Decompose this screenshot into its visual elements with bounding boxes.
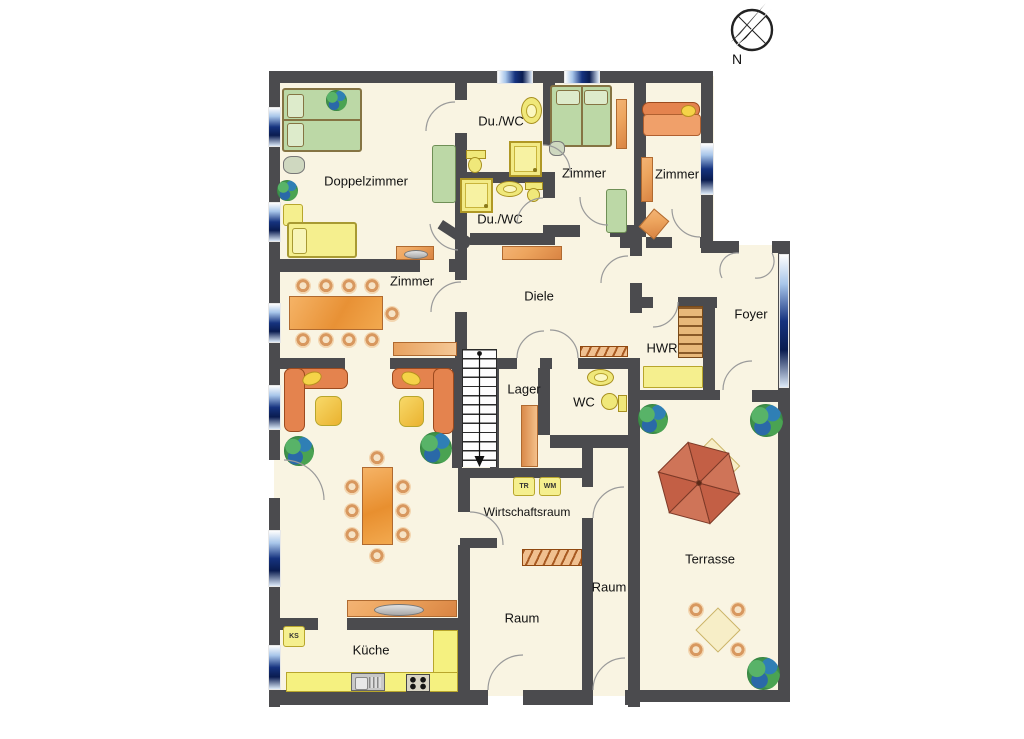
coffee-table: [399, 396, 424, 427]
window: [268, 202, 281, 242]
dryer-label: TR: [519, 483, 528, 490]
chair: [364, 278, 380, 294]
wall: [538, 368, 550, 435]
pillow: [292, 228, 307, 254]
closet: [606, 189, 627, 233]
dryer-box: TR: [513, 477, 535, 496]
window: [268, 107, 281, 147]
sideboard: [393, 342, 457, 356]
nightstand: [283, 156, 305, 174]
bed-divider: [284, 119, 360, 121]
bench: [643, 366, 703, 388]
wall: [269, 259, 420, 272]
wall: [347, 618, 458, 630]
kitchen-sink: [351, 673, 385, 691]
pillow: [556, 90, 580, 105]
pillow: [287, 123, 304, 147]
terrace-chair: [688, 602, 704, 618]
double-bed: [282, 88, 362, 152]
kitchen-counter: [433, 630, 458, 674]
chair: [369, 548, 385, 564]
room-label-zimmer-mitte: Zimmer: [562, 166, 606, 181]
shower: [509, 141, 542, 177]
terrace-chair: [730, 642, 746, 658]
wall: [543, 225, 580, 237]
window: [497, 70, 533, 84]
plant: [420, 432, 452, 464]
plant: [284, 436, 314, 466]
wall: [455, 83, 467, 100]
plant: [326, 90, 347, 111]
terrace-chair: [688, 642, 704, 658]
single-bed: [287, 222, 357, 258]
coat-rack: [522, 549, 582, 566]
chair: [395, 479, 411, 495]
room-label-kueche: Küche: [353, 643, 390, 658]
staircase: [462, 349, 497, 467]
room-label-foyer: Foyer: [734, 307, 767, 322]
chair: [341, 332, 357, 348]
room-label-hwr: HWR: [646, 341, 677, 356]
wall: [550, 435, 638, 448]
pillow: [287, 94, 304, 118]
tray: [404, 250, 428, 259]
washer-box: WM: [539, 477, 561, 496]
storage-shelf: [521, 405, 538, 467]
sideboard: [502, 246, 562, 260]
wall: [543, 172, 555, 198]
sideboard: [396, 246, 434, 260]
room-label-zimmer-ess: Zimmer: [390, 274, 434, 289]
wall: [642, 297, 653, 308]
wall: [582, 448, 593, 487]
room-label-du-wc-bottom: Du./WC: [477, 212, 523, 227]
chair: [395, 503, 411, 519]
room-label-du-wc-top: Du./WC: [478, 114, 524, 129]
window: [268, 530, 281, 587]
room-label-wc: WC: [573, 395, 595, 410]
pillow: [584, 90, 608, 105]
wall: [752, 390, 790, 402]
window: [268, 645, 281, 690]
plant: [747, 657, 780, 690]
wall: [578, 358, 640, 369]
wall: [630, 690, 790, 702]
chair: [384, 306, 400, 322]
wardrobe: [616, 99, 627, 149]
wall: [630, 237, 642, 256]
stove: [406, 674, 430, 692]
wall: [700, 237, 713, 248]
shelf: [678, 306, 703, 358]
fridge-label: KS: [289, 633, 299, 640]
washbasin: [587, 369, 614, 386]
double-bed: [550, 85, 612, 147]
room-label-wirtschaftsraum: Wirtschaftsraum: [484, 505, 571, 519]
room-label-diele: Diele: [524, 289, 554, 304]
bed-divider: [581, 87, 583, 145]
chair: [295, 332, 311, 348]
wall: [458, 545, 470, 690]
terrace-chair: [730, 602, 746, 618]
window: [700, 143, 714, 195]
chair: [318, 278, 334, 294]
washbasin: [496, 181, 523, 197]
wall: [646, 237, 672, 248]
plant: [750, 404, 783, 437]
nightstand: [549, 141, 565, 156]
chair: [369, 450, 385, 466]
wall: [269, 690, 488, 705]
wall: [470, 233, 545, 245]
wall: [628, 358, 640, 707]
fridge-box: KS: [283, 626, 305, 647]
chair: [318, 332, 334, 348]
wardrobe: [641, 157, 653, 202]
washbasin: [521, 97, 542, 124]
shower: [460, 178, 493, 213]
chair: [341, 278, 357, 294]
corner-sofa: [433, 368, 454, 434]
sofa-cushion: [681, 105, 696, 117]
chair: [364, 332, 380, 348]
sofa-seat: [643, 114, 701, 136]
chair: [395, 527, 411, 543]
wall: [778, 392, 790, 702]
platter: [374, 604, 424, 616]
wall: [713, 241, 739, 253]
wall: [497, 358, 517, 369]
wall: [458, 468, 470, 512]
wall: [269, 71, 713, 83]
window-foyer-glass: [779, 254, 789, 388]
wall: [582, 518, 593, 690]
plant: [638, 404, 668, 434]
wall: [455, 259, 467, 280]
room-label-raum-schmal: Raum: [592, 580, 627, 595]
wall: [703, 297, 715, 400]
chair: [295, 278, 311, 294]
chair: [344, 527, 360, 543]
floor-plan-canvas: KS TR WM Doppelzimmer Du./WC Du./WC Zimm…: [0, 0, 1024, 739]
chair: [344, 479, 360, 495]
compass-label: N: [732, 51, 742, 67]
coat-rack: [580, 346, 628, 357]
window: [268, 303, 281, 343]
wall: [523, 690, 593, 705]
wardrobe: [432, 145, 456, 203]
room-label-terrasse: Terrasse: [685, 552, 735, 567]
kitchen-sideboard: [347, 600, 457, 617]
coffee-table: [315, 396, 342, 426]
compass-rose: [731, 3, 772, 50]
room-label-raum-links: Raum: [505, 611, 540, 626]
plant: [277, 180, 298, 201]
dining-table: [362, 467, 393, 545]
room-label-doppelzimmer: Doppelzimmer: [324, 174, 408, 189]
room-label-lager: Lager: [507, 382, 540, 397]
washer-label: WM: [544, 483, 556, 490]
dining-table: [289, 296, 383, 330]
window: [268, 385, 281, 430]
chair: [344, 503, 360, 519]
room-label-zimmer-rechts: Zimmer: [655, 167, 699, 182]
wall: [630, 283, 642, 313]
window: [564, 70, 600, 84]
